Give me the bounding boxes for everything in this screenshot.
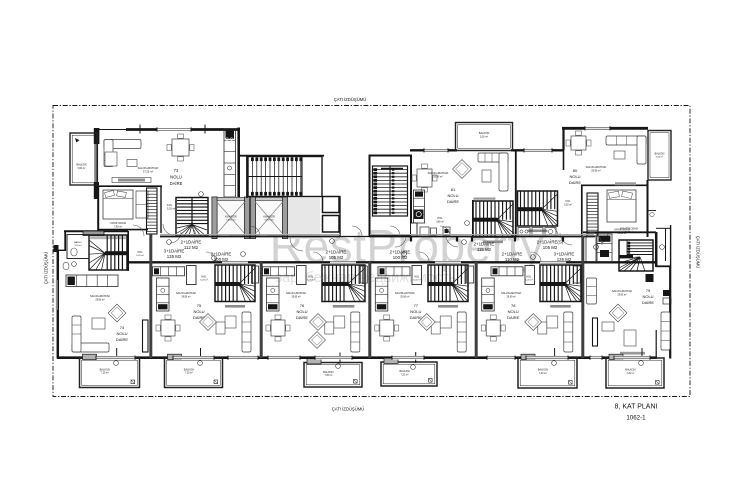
svg-text:5,20 m²: 5,20 m²	[600, 255, 608, 258]
svg-text:29,90 m²: 29,90 m²	[291, 295, 300, 298]
svg-text:76: 76	[300, 303, 305, 308]
svg-text:DAİRE: DAİRE	[170, 181, 183, 186]
svg-text:SALON+MUTFAK: SALON+MUTFAK	[286, 292, 306, 295]
svg-text:HOL: HOL	[202, 276, 208, 279]
svg-text:BALKON: BALKON	[100, 368, 110, 371]
svg-text:BANYO: BANYO	[74, 241, 82, 244]
svg-text:37,25 m²: 37,25 m²	[143, 170, 153, 174]
svg-text:HOL: HOL	[415, 276, 421, 279]
svg-text:29,90 m²: 29,90 m²	[433, 176, 443, 179]
svg-text:105 M2: 105 M2	[329, 255, 344, 260]
svg-text:77: 77	[414, 303, 419, 308]
svg-text:ÇATI İZDÜŞÜMÜ: ÇATI İZDÜŞÜMÜ	[44, 252, 49, 285]
svg-text:SALON+MUTFAK: SALON+MUTFAK	[395, 292, 415, 295]
svg-text:BALKON: BALKON	[399, 370, 409, 373]
svg-text:ÇATI İZDÜŞÜMÜ: ÇATI İZDÜŞÜMÜ	[332, 407, 365, 412]
svg-text:NOLU: NOLU	[170, 175, 182, 180]
svg-text:7,20 m²: 7,20 m²	[539, 372, 547, 375]
svg-text:29,90 m²: 29,90 m²	[617, 293, 626, 296]
svg-text:ASANSÖR: ASANSÖR	[263, 215, 275, 218]
svg-text:5,95/5,20: 5,95/5,20	[226, 219, 236, 221]
svg-text:DAİRE: DAİRE	[116, 337, 129, 342]
svg-text:29,90 m²: 29,90 m²	[95, 298, 104, 301]
svg-text:5,20 m²: 5,20 m²	[200, 279, 208, 282]
svg-text:SALON+MUTFAK: SALON+MUTFAK	[90, 295, 110, 298]
svg-text:80: 80	[573, 168, 578, 173]
svg-text:29,90 m²: 29,90 m²	[181, 295, 190, 298]
svg-text:DAİRE: DAİRE	[447, 199, 460, 204]
svg-text:115 M2: 115 M2	[477, 247, 492, 252]
svg-text:DAİRE: DAİRE	[507, 315, 520, 320]
svg-text:BALKON: BALKON	[538, 369, 548, 372]
svg-text:5,60 m²: 5,60 m²	[78, 167, 86, 170]
svg-text:5,20 m²: 5,20 m²	[413, 279, 421, 282]
svg-text:78: 78	[511, 303, 516, 308]
svg-text:ASANSÖR: ASANSÖR	[225, 215, 237, 218]
svg-text:2+1DAİRE: 2+1DAİRE	[181, 240, 202, 245]
svg-text:7,20 m²: 7,20 m²	[101, 372, 109, 375]
svg-text:SALON+MUTFAK: SALON+MUTFAK	[501, 292, 521, 295]
svg-text:NOLU: NOLU	[508, 309, 519, 314]
svg-text:HOL: HOL	[602, 252, 608, 255]
svg-text:HOL: HOL	[527, 276, 533, 279]
svg-text:NOLU: NOLU	[447, 193, 458, 198]
svg-text:5,20 m²: 5,20 m²	[136, 254, 144, 257]
svg-text:7,20 m²: 7,20 m²	[185, 372, 193, 375]
svg-text:7,90 m²: 7,90 m²	[114, 225, 122, 228]
svg-text:BALKON: BALKON	[625, 369, 635, 372]
svg-text:ÇATI İZDÜŞÜMÜ: ÇATI İZDÜŞÜMÜ	[696, 236, 701, 269]
svg-text:5,20 m²: 5,20 m²	[75, 244, 82, 247]
svg-text:DAİRE: DAİRE	[296, 315, 309, 320]
svg-text:5,20 m²: 5,20 m²	[307, 279, 315, 282]
svg-text:5,20 m²: 5,20 m²	[525, 279, 533, 282]
svg-text:BALKON: BALKON	[76, 164, 86, 167]
svg-text:MİSAFİR ODASI: MİSAFİR ODASI	[620, 228, 638, 231]
svg-text:5,20 m²: 5,20 m²	[564, 203, 572, 206]
svg-text:NOLU: NOLU	[410, 309, 421, 314]
svg-text:KOL: KOL	[565, 200, 571, 203]
svg-text:NOLU: NOLU	[116, 331, 127, 336]
svg-text:2+1DAİRE: 2+1DAİRE	[326, 250, 347, 255]
svg-text:HOL: HOL	[437, 217, 443, 220]
svg-text:135 M2: 135 M2	[167, 254, 182, 259]
svg-text:NOLU: NOLU	[569, 174, 580, 179]
svg-text:7,20 m²: 7,20 m²	[626, 372, 634, 375]
svg-text:7,20 m²: 7,20 m²	[401, 373, 409, 376]
svg-text:ÇATI İZDÜŞÜMÜ: ÇATI İZDÜŞÜMÜ	[334, 97, 367, 102]
svg-text:8, KAT PLANI: 8, KAT PLANI	[615, 404, 658, 411]
svg-text:NOLU: NOLU	[642, 294, 653, 299]
svg-text:3,80 m²: 3,80 m²	[436, 220, 444, 223]
svg-text:74: 74	[120, 325, 125, 330]
svg-text:5,26 m²: 5,26 m²	[480, 135, 488, 138]
svg-text:2+1DAİRE: 2+1DAİRE	[502, 252, 523, 257]
svg-text:SALON+MUTFAK: SALON+MUTFAK	[586, 165, 607, 169]
svg-text:5,95/5,20: 5,95/5,20	[264, 219, 274, 221]
svg-text:SALON+MUTFAK: SALON+MUTFAK	[176, 292, 196, 295]
svg-text:75: 75	[197, 303, 202, 308]
svg-text:5,60 m²: 5,60 m²	[656, 156, 664, 159]
svg-text:BALKON: BALKON	[479, 131, 490, 135]
svg-text:BALKON: BALKON	[323, 371, 333, 374]
svg-text:5,20 m²: 5,20 m²	[167, 207, 175, 210]
svg-text:BALKON: BALKON	[184, 368, 194, 371]
svg-text:NOLU: NOLU	[193, 309, 204, 314]
svg-text:KOL: KOL	[167, 203, 173, 207]
svg-text:DAİRE: DAİRE	[642, 300, 655, 305]
svg-text:HOL: HOL	[138, 251, 144, 254]
svg-text:29,90 m²: 29,90 m²	[400, 295, 409, 298]
svg-text:73: 73	[174, 168, 179, 173]
svg-text:BALKON: BALKON	[655, 153, 665, 156]
svg-text:3+1DAİRE: 3+1DAİRE	[554, 252, 575, 257]
svg-text:2+1DAİRE(S): 2+1DAİRE(S)	[537, 240, 564, 245]
svg-text:11,20 m²: 11,20 m²	[625, 230, 634, 233]
svg-text:7,20 m²: 7,20 m²	[324, 374, 332, 377]
svg-text:DAİRE: DAİRE	[569, 180, 582, 185]
svg-text:29,90 m²: 29,90 m²	[507, 295, 516, 298]
svg-text:SALON+MUTFAK: SALON+MUTFAK	[138, 166, 159, 170]
svg-text:DAİRE: DAİRE	[410, 315, 423, 320]
svg-text:SALON+MUTFAK: SALON+MUTFAK	[428, 171, 449, 175]
svg-text:2+1DAİRE: 2+1DAİRE	[474, 242, 495, 247]
svg-text:29,90 m²: 29,90 m²	[591, 170, 601, 173]
svg-text:HOL: HOL	[309, 276, 315, 279]
svg-text:2+1DAİRE: 2+1DAİRE	[390, 250, 411, 255]
svg-text:SALON+MUTFAK: SALON+MUTFAK	[612, 290, 632, 293]
svg-text:NOLU: NOLU	[296, 309, 307, 314]
svg-text:3+1DAİRE: 3+1DAİRE	[164, 249, 185, 254]
svg-text:1062-1: 1062-1	[626, 415, 646, 422]
svg-text:79: 79	[646, 288, 651, 293]
svg-text:81: 81	[451, 187, 456, 192]
svg-text:105 M2: 105 M2	[543, 245, 558, 250]
svg-text:112 M2: 112 M2	[184, 245, 199, 250]
